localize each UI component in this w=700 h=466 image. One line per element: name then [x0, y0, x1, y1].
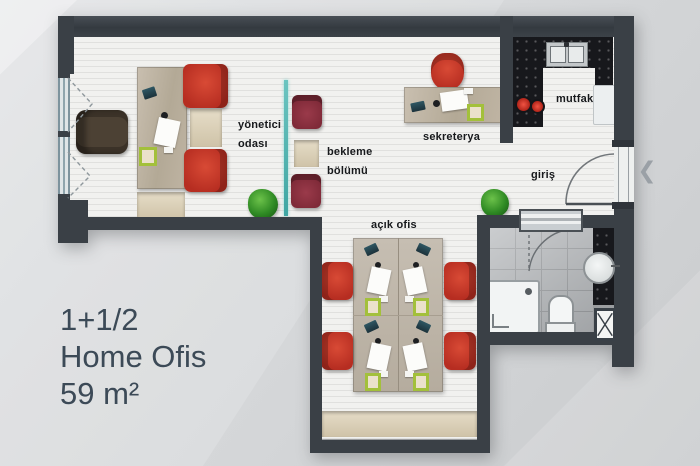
office-chair: [444, 262, 476, 300]
waiting-side-table: [294, 140, 319, 167]
label-waiting-line2: bölümü: [327, 165, 368, 178]
prev-arrow-icon[interactable]: ❮: [636, 155, 658, 187]
wall-right-mid: [614, 203, 634, 345]
label-waiting-line1: bekleme: [327, 146, 372, 159]
sideboard: [137, 192, 185, 219]
office-chair: [321, 262, 353, 300]
installation-shaft: [594, 308, 616, 341]
side-table: [190, 109, 222, 147]
label-manager-office-line2: odası: [238, 138, 268, 151]
window-hinge: [58, 72, 70, 78]
glass-partition: [284, 80, 288, 216]
office-chair: [321, 332, 353, 370]
open-office-sideboard: [322, 411, 477, 437]
window-hinge: [58, 131, 70, 137]
sink-basin: [550, 46, 566, 63]
wall-left-upper: [58, 16, 74, 74]
file-box: [365, 298, 381, 316]
office-chair: [444, 332, 476, 370]
bathroom-sliding-door: [519, 209, 583, 232]
paper-sheet: [367, 342, 392, 372]
label-kitchen: mutfak: [556, 93, 593, 106]
unit-title-block: 1+1/2 Home Ofis 59 m²: [60, 301, 206, 412]
laptop: [416, 243, 432, 257]
entry-door-opening: [614, 146, 634, 203]
sink-basin: [568, 46, 584, 63]
faucet: [564, 42, 569, 47]
door-jamb: [612, 202, 634, 209]
desk-note: [464, 88, 473, 94]
label-manager-office-line1: yönetici: [238, 119, 281, 132]
label-entrance: giriş: [531, 169, 555, 182]
wall-bottom-left: [58, 217, 310, 230]
guest-armchair: [183, 64, 228, 108]
desk-note: [164, 147, 173, 153]
label-secretary: sekreterya: [423, 131, 480, 144]
laptop: [364, 320, 380, 334]
paper-sheet: [403, 342, 428, 372]
unit-type: 1+1/2: [60, 301, 206, 338]
wall-top: [58, 16, 634, 37]
paper-sheet: [367, 266, 392, 296]
wall-kitchen-divider: [500, 16, 513, 143]
floorplan-screenshot: yönetici odası bekleme bölümü sekreterya…: [0, 0, 700, 466]
file-box: [467, 104, 484, 121]
paper-sheet: [403, 266, 428, 296]
unit-area: 59 m²: [60, 375, 206, 412]
shaft-cross-icon: [597, 311, 613, 338]
laptop: [364, 243, 380, 257]
waiting-chair: [291, 174, 321, 208]
shower-tray: [486, 280, 540, 334]
wall-openoffice-bottom: [310, 440, 490, 453]
stove-burner: [530, 99, 545, 114]
open-office-table: [353, 238, 443, 392]
kitchen-counter-right: [595, 37, 613, 85]
guest-armchair: [184, 149, 227, 192]
plant: [481, 189, 509, 217]
label-open-office: açık ofis: [371, 219, 417, 232]
file-box: [365, 373, 381, 391]
unit-name: Home Ofis: [60, 338, 206, 375]
secretary-chair: [431, 53, 464, 90]
refrigerator: [593, 85, 616, 125]
desk-phone: [433, 100, 440, 107]
laptop: [416, 320, 432, 334]
waiting-chair: [292, 95, 322, 129]
executive-chair: [76, 110, 128, 154]
kitchen-sink: [546, 42, 588, 67]
wall-openoffice-left: [310, 217, 322, 453]
bathroom-sink: [583, 252, 615, 284]
file-box: [413, 298, 429, 316]
window: [58, 74, 70, 200]
shower-hose: [492, 314, 509, 328]
window-hinge: [58, 194, 70, 200]
door-jamb: [612, 140, 634, 147]
wall-right-upper: [614, 16, 634, 145]
file-box: [139, 147, 157, 166]
file-box: [413, 373, 429, 391]
plant: [248, 189, 278, 219]
shower-drain: [525, 288, 532, 295]
